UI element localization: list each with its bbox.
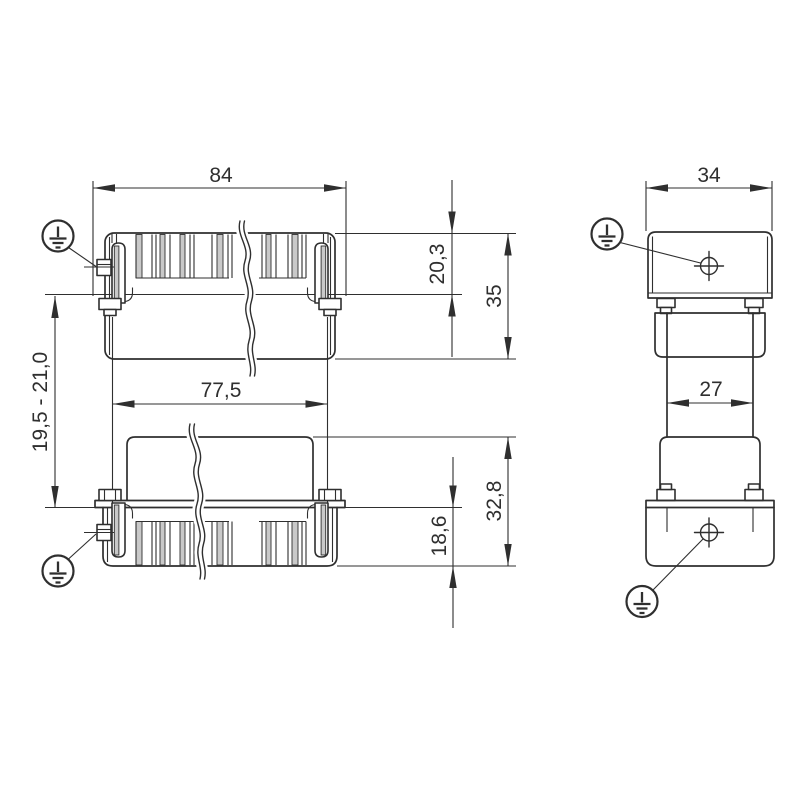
insert-hatch-lines <box>152 522 302 566</box>
pe-screw-position-top <box>695 252 724 281</box>
dim-186-arrow-top <box>449 486 456 508</box>
base-side-flange <box>646 501 774 508</box>
insert-band <box>180 522 185 566</box>
dim-neck-width: 27 <box>667 378 753 407</box>
drawing-canvas: 84 20,3 35 19,5 - 21,0 77,5 <box>0 0 800 800</box>
base-tab-right <box>319 490 341 501</box>
dim-mounting-range: 19,5 - 21,0 <box>29 296 59 508</box>
side-tab-bottom-left <box>657 490 675 501</box>
dim-328-arrow-bottom <box>504 544 511 566</box>
dim-27-arrow-right <box>731 399 753 406</box>
dim-195-arrow-top <box>51 296 58 318</box>
dim-84-arrow-left <box>93 184 115 191</box>
dim-hood-height: 35 <box>483 234 512 360</box>
dim-328-label: 32,8 <box>483 481 506 522</box>
contact-insert-bottom <box>136 522 306 566</box>
dim-27-label: 27 <box>699 378 722 401</box>
pin-shade-lower-right <box>321 505 326 555</box>
insert-band <box>266 522 271 566</box>
pin-hook-lower-left <box>125 505 133 519</box>
dim-35-arrow-top <box>504 234 511 256</box>
front-view: 84 20,3 35 19,5 - 21,0 77,5 <box>29 164 516 628</box>
insert-band <box>136 235 142 279</box>
dim-side-width: 34 <box>646 164 772 231</box>
base-side-inner-stubs <box>667 508 753 533</box>
base-side <box>627 437 775 617</box>
dim-84-label: 84 <box>209 164 233 187</box>
hood-front <box>43 221 342 377</box>
contact-insert-top <box>136 235 306 279</box>
neck-outline <box>667 313 753 437</box>
base-collar-outline <box>127 437 313 500</box>
dim-203-arrow-top <box>448 212 455 234</box>
hood-side-outline <box>648 232 772 298</box>
side-tab-bottom-right-lip <box>749 484 760 490</box>
dim-186-arrow-bottom <box>449 566 456 588</box>
dim-base-flange-offset: 18,6 <box>428 457 457 628</box>
dim-186-label: 18,6 <box>428 516 451 557</box>
dim-27-arrow-left <box>667 399 689 406</box>
base-flange <box>95 501 345 508</box>
hood-side-inner-walls <box>653 237 768 294</box>
earth-glyph <box>50 227 67 248</box>
side-view: 34 <box>592 164 775 617</box>
base-front <box>43 424 346 587</box>
flange-lug-foot-left <box>104 310 116 316</box>
insert-band <box>160 235 165 279</box>
dim-195-arrow-bottom <box>51 486 58 508</box>
dim-guide-spacing: 77,5 <box>113 379 328 408</box>
dim-34-arrow-left <box>646 184 668 191</box>
dim-203-arrow-bottom <box>448 295 455 317</box>
side-tab-bottom-left-lip <box>661 484 672 490</box>
side-tab-top-left <box>657 299 675 308</box>
earth-symbol-bottom-right <box>627 539 704 618</box>
insert-band <box>160 522 165 566</box>
side-tab-bottom-right <box>745 490 763 501</box>
hood-side-collar <box>655 313 765 357</box>
screw-crosshair <box>695 252 724 281</box>
insert-band <box>292 522 298 566</box>
dim-34-arrow-right <box>750 184 772 191</box>
flange-lug-right <box>319 299 341 310</box>
dim-35-label: 35 <box>483 284 506 307</box>
base-side-housing <box>646 508 774 567</box>
insert-band <box>266 235 271 279</box>
insert-band <box>180 235 185 279</box>
insert-band <box>217 235 223 279</box>
dim-195-label: 19,5 - 21,0 <box>29 352 52 452</box>
dim-775-label: 77,5 <box>201 379 242 402</box>
dim-base-height: 32,8 <box>483 437 512 566</box>
flange-lug-left <box>99 299 121 310</box>
insert-band <box>217 522 223 566</box>
flange-lug-foot-right <box>324 310 336 316</box>
insert-hatch-lines <box>152 235 302 279</box>
earth-glyph <box>599 225 616 246</box>
insert-band <box>136 522 142 566</box>
dim-328-arrow-top <box>504 437 511 459</box>
dim-775-arrow-left <box>113 400 135 407</box>
earth-leader-line <box>653 539 704 591</box>
dim-34-label: 34 <box>697 164 721 187</box>
dim-84-arrow-right <box>324 184 346 191</box>
side-tab-top-right <box>745 299 763 308</box>
dim-775-arrow-right <box>306 400 328 407</box>
hood-side <box>592 219 773 358</box>
pin-shade-left <box>114 246 119 300</box>
dim-35-arrow-bottom <box>504 337 511 359</box>
pin-shade-right <box>321 246 326 300</box>
dim-203-label: 20,3 <box>426 244 449 285</box>
pin-shade-lower-left <box>114 505 119 555</box>
pin-hook-lower-right <box>308 505 316 519</box>
insert-band <box>292 235 298 279</box>
connector-dimension-drawing: 84 20,3 35 19,5 - 21,0 77,5 <box>0 0 800 800</box>
base-tab-left <box>99 490 121 501</box>
guide-pin-projection-lines <box>113 317 328 548</box>
earth-leader-line <box>620 243 701 264</box>
earth-glyph <box>50 562 67 583</box>
dim-hood-flange-offset: 20,3 <box>426 180 456 357</box>
earth-glyph <box>634 592 651 613</box>
dim-overall-width: 84 <box>93 164 346 192</box>
